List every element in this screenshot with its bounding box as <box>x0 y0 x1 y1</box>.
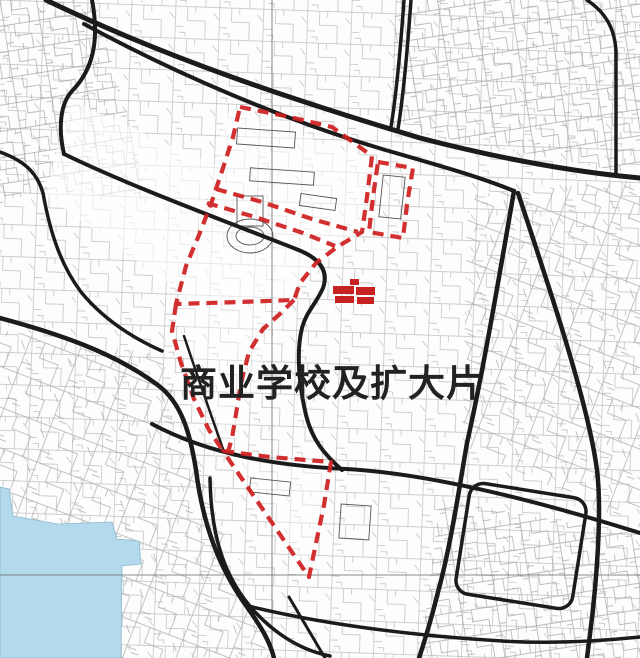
planning-map-canvas: 商业学校及扩大片 <box>0 0 640 658</box>
map-image: 商业学校及扩大片 <box>0 0 640 658</box>
area-label: 商业学校及扩大片 <box>180 362 484 405</box>
